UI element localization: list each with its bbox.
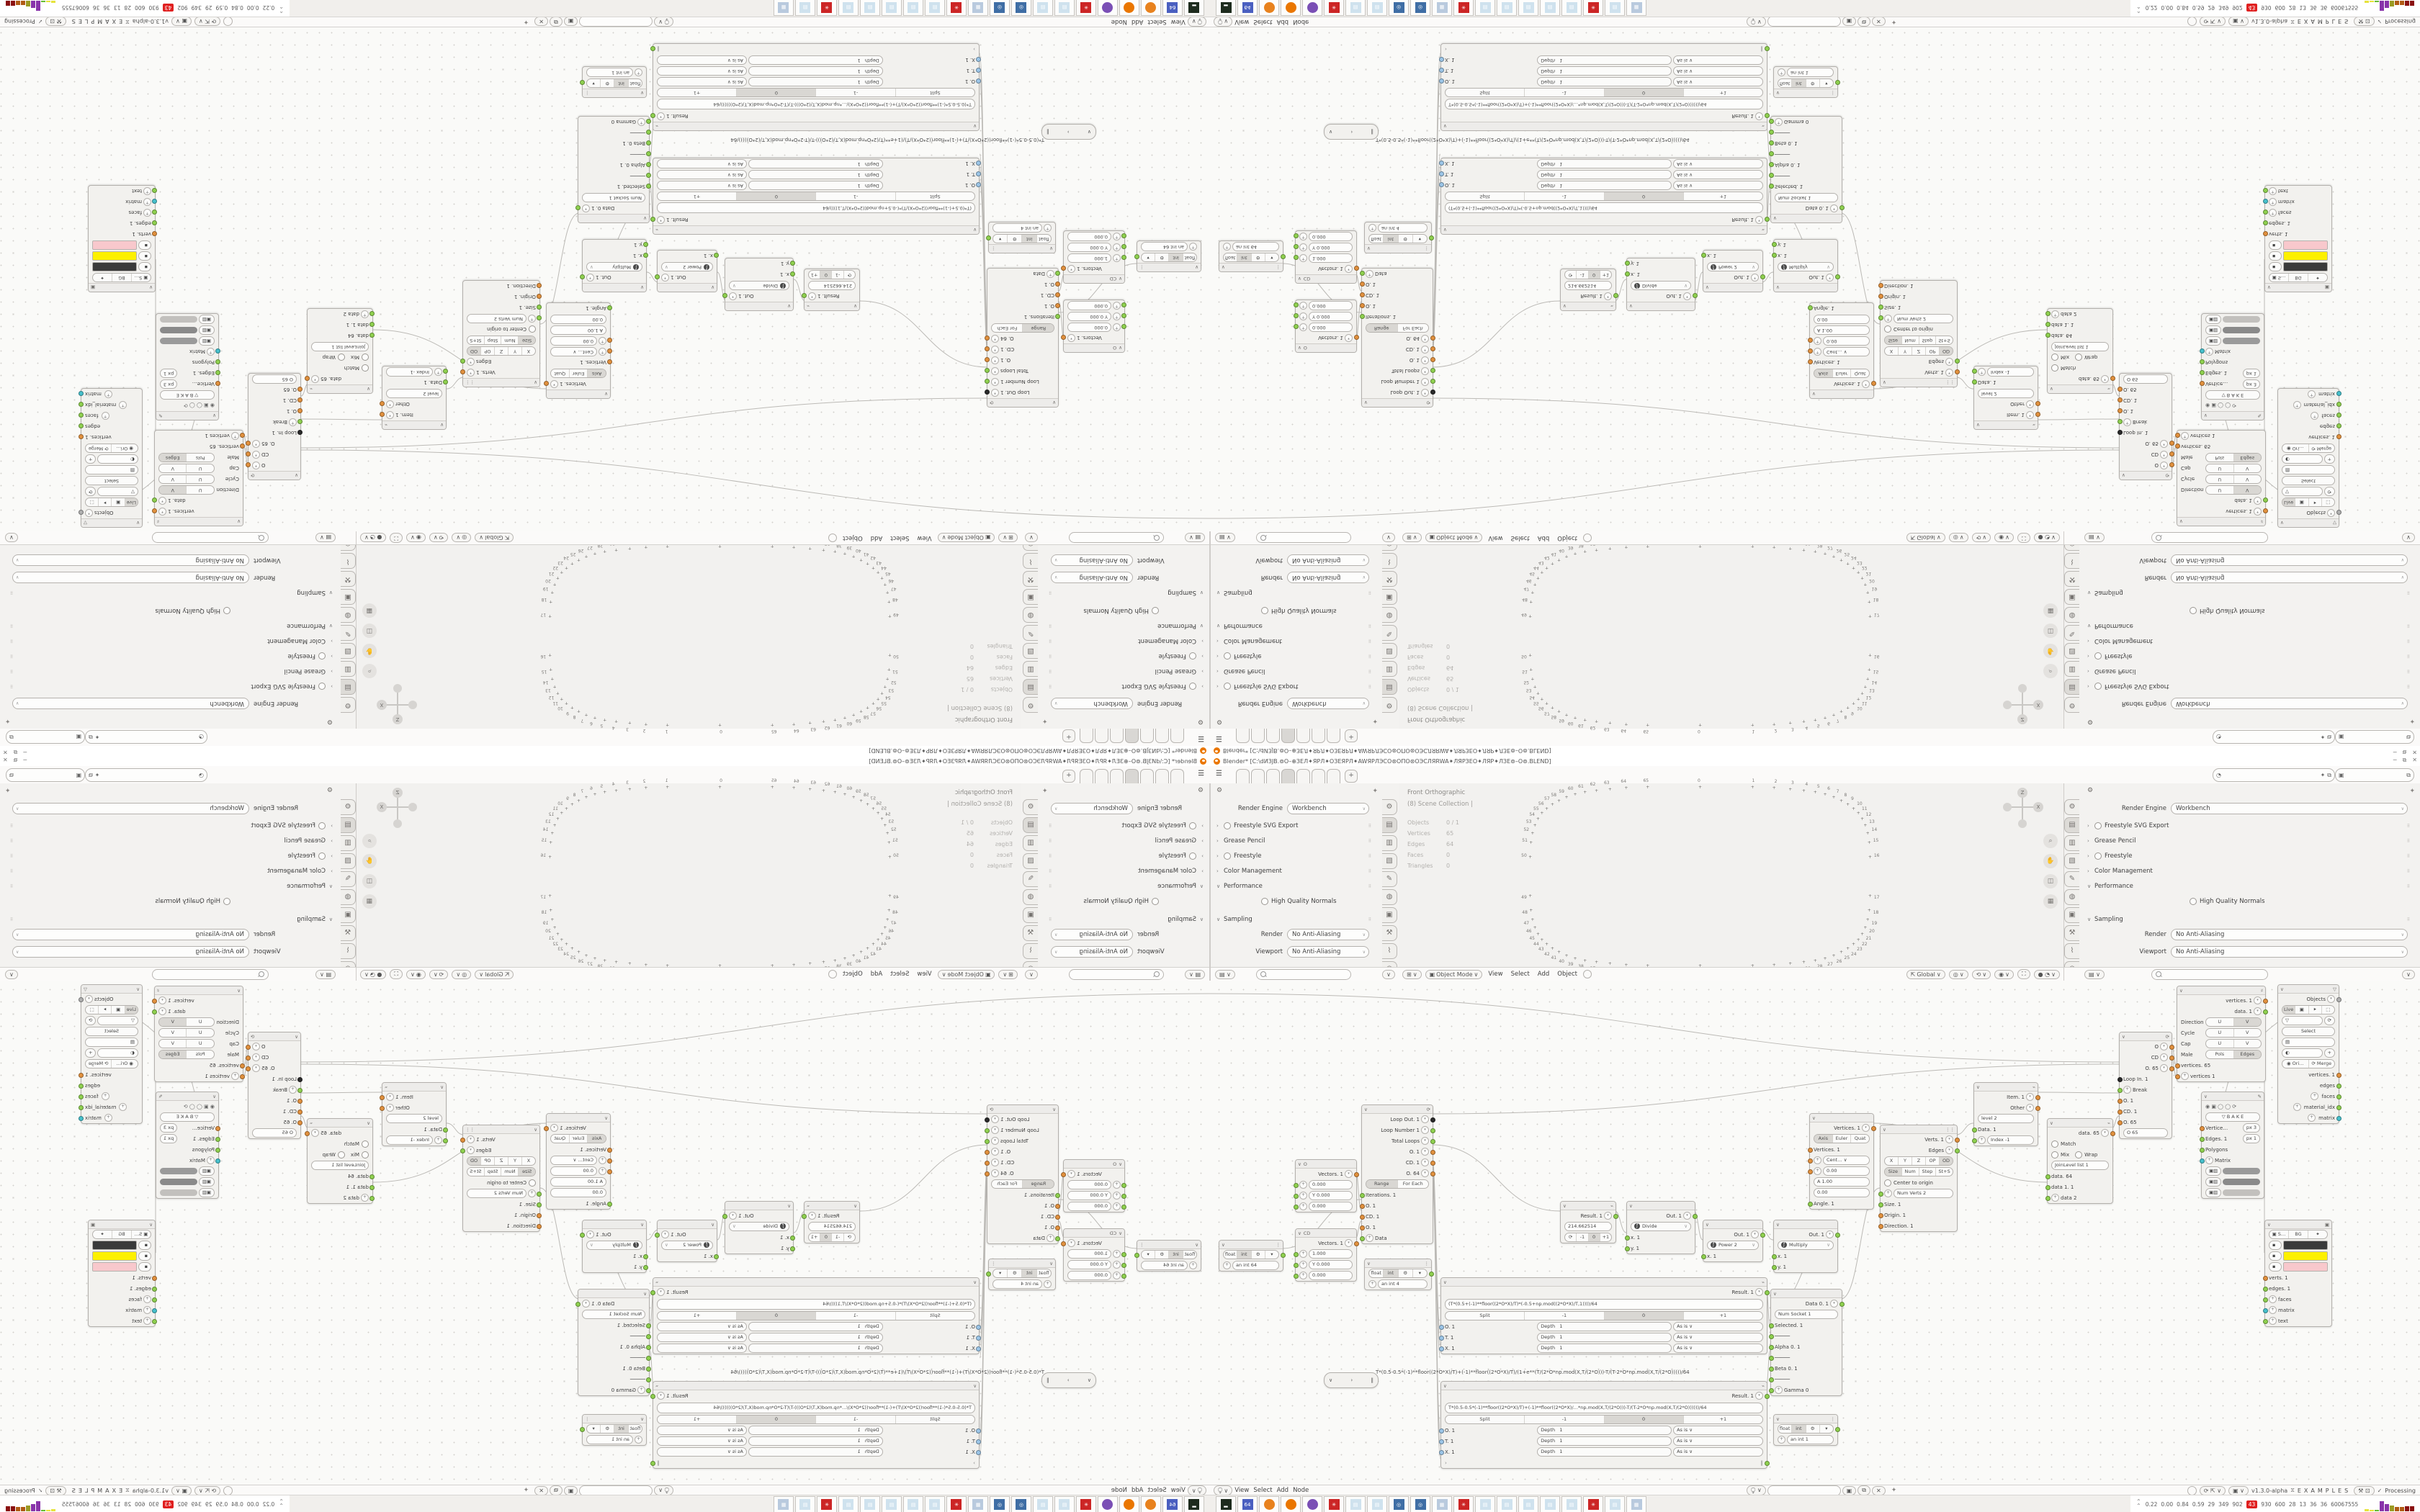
segment-button[interactable]: U: [187, 475, 215, 483]
collapse-chevron-icon[interactable]: ∨: [237, 519, 241, 525]
snap-circle-icon[interactable]: [223, 1486, 233, 1495]
editor-type-button[interactable]: ▤ ∨: [1185, 970, 1205, 979]
output-row[interactable]: Result. 1▾: [653, 111, 979, 122]
field-row[interactable]: +1.000: [1296, 1248, 1356, 1259]
segment-button[interactable]: +1: [1684, 89, 1762, 96]
segment-button[interactable]: int: [1169, 1251, 1183, 1259]
collapse-chevron-icon[interactable]: ∨: [136, 986, 140, 992]
field-row[interactable]: level 2: [382, 1113, 446, 1124]
field-row[interactable]: +Cent… ∨: [1810, 1155, 1873, 1166]
shading-buttons[interactable]: ● ◔ ∨: [2034, 534, 2060, 543]
output-row[interactable]: O. 64▾: [987, 333, 1058, 344]
output-row[interactable]: +matrix: [2278, 1112, 2339, 1123]
output-row[interactable]: Result. 1▾: [805, 1210, 859, 1221]
segment-button[interactable]: Range: [1023, 1180, 1054, 1188]
input-row[interactable]: Size. 1: [1881, 1199, 1957, 1210]
collapse-chevron-icon[interactable]: ∨: [1776, 1222, 1780, 1228]
output-row[interactable]: CD. 1▾: [987, 344, 1058, 355]
taskbar-calculator-icon[interactable]: ▦: [1626, 1496, 1646, 1512]
output-row[interactable]: Data 0. 1▾: [578, 203, 649, 214]
segment-button[interactable]: Step: [1919, 1168, 1937, 1176]
taskbar-disc-icon[interactable]: ◎: [1389, 1496, 1409, 1512]
segment-button[interactable]: Y: [508, 347, 521, 355]
output-row[interactable]: Other▾: [382, 1102, 446, 1113]
input-row[interactable]: Alpha 0. 1: [1771, 160, 1842, 171]
output-row[interactable]: Vectors. 1▾: [1064, 333, 1124, 343]
workspace-tab[interactable]: [1281, 729, 1295, 743]
viewport-nav-button[interactable]: ✋: [2043, 854, 2058, 868]
socket[interactable]: [723, 1214, 728, 1219]
labeled-button-row[interactable]: CycleUV: [155, 1027, 243, 1038]
viewlayer-selector[interactable]: ▣ ⧉: [2335, 730, 2414, 744]
drag-dots-icon[interactable]: ⠿: [1368, 854, 1372, 859]
properties-tab-icon[interactable]: ⌇: [1382, 553, 1397, 569]
socket[interactable]: [581, 81, 586, 86]
socket[interactable]: [380, 402, 385, 407]
field-row[interactable]: +0.000: [1064, 300, 1124, 311]
overlay-group[interactable]: ▣ ∨: [171, 17, 192, 27]
socket[interactable]: [1062, 266, 1067, 271]
formula-field-row[interactable]: (T*(0.5+(-1)**floor((2*O*X)/T)*(-0.5+np.…: [1441, 202, 1767, 215]
socket[interactable]: [2117, 1088, 2123, 1093]
node-list-join[interactable]: ∨⌁data. 65▾MatchMixWrapJoinLevel list 1d…: [307, 1118, 373, 1204]
viewport-nav-button[interactable]: ⌕: [362, 664, 377, 678]
depth-row[interactable]: X. 1Depth 1As is ∨: [653, 1343, 979, 1354]
field-row[interactable]: +Num Verts 2: [1881, 313, 1957, 324]
toggle-slider-row[interactable]: ▣▥: [156, 1166, 218, 1176]
segment-button[interactable]: int: [614, 1425, 628, 1433]
segment-button[interactable]: ▣: [112, 498, 125, 506]
prop-check-high-quality-normals[interactable]: High Quality Normals: [2190, 604, 2420, 617]
socket[interactable]: [651, 47, 656, 52]
prop-section-performance[interactable]: ∨Performance⠿: [5, 619, 333, 632]
close-button[interactable]: ✕: [3, 757, 8, 764]
properties-tab-icon[interactable]: ✎: [2064, 625, 2079, 641]
socket[interactable]: [985, 369, 990, 374]
taskbar-notepad-icon[interactable]: ▤: [1367, 1496, 1387, 1512]
socket[interactable]: [1625, 1236, 1630, 1241]
segment-button[interactable]: U: [187, 464, 215, 472]
socket[interactable]: [79, 1105, 84, 1110]
input-row[interactable]: ─────: [578, 127, 649, 138]
taskbar-notepad-icon[interactable]: ▤: [860, 0, 880, 16]
properties-tab-icon[interactable]: ✎: [1382, 871, 1397, 887]
toggle-radio[interactable]: [2094, 652, 2102, 660]
segment-button[interactable]: Step: [484, 336, 501, 344]
workspace-tab[interactable]: [1312, 729, 1325, 743]
input-row[interactable]: Vertice…px 3: [2202, 379, 2264, 390]
segment-button[interactable]: float: [1778, 79, 1792, 87]
collapse-chevron-icon[interactable]: ∨: [2267, 1222, 2271, 1228]
output-row[interactable]: +material_idx: [2278, 1102, 2339, 1112]
editor-type-button[interactable]: ⊞ ∨: [1402, 534, 1422, 543]
input-row[interactable]: y. 1: [725, 258, 793, 269]
depth-row[interactable]: T. 1Depth 1As is ∨: [653, 1332, 979, 1343]
depth-row[interactable]: O. 1Depth 1As is ∨: [1441, 76, 1767, 87]
collapse-chevron-icon[interactable]: ∨: [212, 1094, 216, 1099]
properties-tab-icon[interactable]: ◍: [341, 607, 356, 623]
workspace-tab[interactable]: [1155, 769, 1169, 783]
properties-tab-icon[interactable]: ▥: [2064, 661, 2079, 677]
taskbar-calculator-icon[interactable]: ▦: [968, 1496, 988, 1512]
node-uv-connection[interactable]: ∨♯vertices. 1▾data. 1▾DirectionUVCycleUV…: [154, 986, 243, 1082]
button-row[interactable]: XYZOPOD: [1881, 346, 1957, 356]
output-row[interactable]: Out. 1▾: [725, 1210, 793, 1221]
viewport-nav-button[interactable]: ◫: [362, 874, 377, 888]
taskbar-terminal-icon[interactable]: ▂: [1184, 1496, 1204, 1512]
button-row[interactable]: Split-10+1: [653, 1414, 979, 1425]
taskbar-blender-icon[interactable]: [1281, 1496, 1301, 1512]
socket[interactable]: [79, 997, 84, 1002]
socket[interactable]: [2117, 1120, 2123, 1125]
field-row[interactable]: +Cent… ∨: [547, 346, 610, 357]
properties-tab-icon[interactable]: ▥: [341, 661, 356, 677]
properties-tab-icon[interactable]: ▣: [1023, 589, 1038, 605]
taskbar-notepad-icon[interactable]: ▤: [1605, 0, 1625, 16]
checkbox-pair-row[interactable]: MixWrap: [308, 1149, 372, 1160]
output-row[interactable]: +matrix: [81, 389, 142, 400]
prop-value-dropdown[interactable]: No Anti-Aliasing: [2171, 929, 2408, 940]
menu-add[interactable]: Add: [869, 534, 884, 541]
chevron-icon[interactable]: ›: [2087, 853, 2092, 859]
socket[interactable]: [1430, 1150, 1435, 1155]
button-row[interactable]: Split-10+1: [653, 191, 979, 202]
collapse-chevron-icon[interactable]: ∨: [534, 1127, 537, 1133]
menu-select[interactable]: Select: [1251, 18, 1274, 25]
collapse-chevron-icon[interactable]: ∨: [1812, 392, 1816, 397]
button-row[interactable]: floatint⚙▾: [1137, 252, 1201, 263]
field-row[interactable]: ◐+: [2278, 454, 2339, 464]
minimize-button[interactable]: ─: [2393, 757, 2397, 764]
node-list-join[interactable]: ∨⌁data. 65▾MatchMixWrapJoinLevel list 1d…: [2047, 1118, 2113, 1204]
chevron-icon[interactable]: ∨: [328, 590, 333, 595]
segment-button[interactable]: ▣ S…: [131, 1230, 151, 1238]
segment-button[interactable]: V: [2234, 486, 2262, 494]
segment-button[interactable]: Axis: [1814, 369, 1833, 377]
search-input[interactable]: [1069, 533, 1164, 544]
socket[interactable]: [651, 1394, 656, 1399]
collapse-chevron-icon[interactable]: ∨: [787, 304, 791, 310]
options-chevron[interactable]: ∨: [2402, 970, 2415, 979]
prop-section-color-management[interactable]: ›Color Management⠿: [1216, 865, 1376, 878]
collapse-chevron-icon[interactable]: ∨: [1629, 1203, 1633, 1209]
properties-tab-icon[interactable]: ▥: [341, 835, 356, 851]
output-row[interactable]: vertices. 1▾: [2177, 506, 2265, 517]
checkbox[interactable]: [1152, 898, 1159, 905]
gizmos-dropdown[interactable]: ◎ ∨: [452, 970, 471, 979]
viewport-nav-button[interactable]: ✋: [362, 644, 377, 658]
field-row[interactable]: ◐+: [2278, 1048, 2339, 1058]
properties-tab-icon[interactable]: ◍: [1023, 889, 1038, 905]
segment-button[interactable]: Size: [518, 336, 535, 344]
button-row[interactable]: RangeFor Each: [987, 1179, 1058, 1189]
workspace-tab[interactable]: [1110, 769, 1124, 783]
mode-dropdown[interactable]: ▣ Object Mode ∨: [938, 534, 995, 543]
prop-section-sampling[interactable]: ∨Sampling⠿: [1216, 913, 1376, 926]
segment-button[interactable]: ⯈: [98, 498, 111, 506]
taskbar-calculator-icon[interactable]: ▦: [1432, 0, 1452, 16]
segment-button[interactable]: BG: [112, 1230, 131, 1238]
menu-select[interactable]: Select: [888, 534, 911, 541]
workspace-tab[interactable]: [1312, 769, 1325, 783]
segment-button[interactable]: Z: [494, 347, 508, 355]
collapse-chevron-icon[interactable]: ∨: [1706, 285, 1709, 291]
output-row[interactable]: +faces: [2278, 410, 2339, 421]
segment-button[interactable]: Edges: [2234, 1050, 2262, 1058]
properties-tab-icon[interactable]: ⚒: [1023, 925, 1038, 941]
prop-section-color-management[interactable]: ›Color Management⠿: [5, 634, 333, 647]
input-row[interactable]: ─────: [578, 1331, 649, 1341]
checkbox-row[interactable]: Center to origin: [1881, 324, 1957, 335]
taskbar-blender-icon[interactable]: [1119, 0, 1139, 16]
taskbar-notepad-icon[interactable]: ▤: [1054, 1496, 1075, 1512]
axis-z[interactable]: Z: [393, 714, 403, 724]
node-number-64[interactable]: ∨⋮floatint⚙▾+an int 64: [1219, 1240, 1283, 1272]
output-row[interactable]: Data 0. 1▾: [1771, 203, 1842, 214]
chevron-icon[interactable]: ›: [1216, 683, 1222, 689]
field-row[interactable]: +an int 1: [583, 1434, 646, 1445]
menu-object[interactable]: Object: [1555, 534, 1579, 541]
segment-button[interactable]: St+S: [467, 1168, 484, 1176]
taskbar-red-gear-icon[interactable]: ✳: [1324, 0, 1344, 16]
prop-section-color-management[interactable]: ›Color Management⠿: [2087, 865, 2415, 878]
field-row[interactable]: O 65: [2120, 1128, 2172, 1138]
input-row[interactable]: Vertices. 1: [547, 357, 610, 368]
viewport-3d[interactable]: Front Orthographic (8) Scene Collection …: [357, 783, 1021, 981]
collapse-chevron-icon[interactable]: ∨: [1364, 1107, 1368, 1112]
node-formula-big-1[interactable]: ∨⌁Result. 1▾(T*(0.5+(-1)**floor((2*O*X)/…: [653, 158, 980, 235]
socket[interactable]: [153, 1009, 158, 1014]
input-row[interactable]: Loop In. 1: [2120, 1074, 2172, 1084]
taskbar-red-gear-icon[interactable]: ✳: [1583, 1496, 1603, 1512]
output-row[interactable]: Out. 1▾: [1703, 272, 1762, 283]
taskbar-notepad-icon[interactable]: ▤: [1540, 0, 1560, 16]
function-row[interactable]: ƒPower 2∨: [658, 1240, 717, 1251]
prop-section-freestyle[interactable]: ›Freestyle⠿: [1044, 850, 1204, 863]
output-row[interactable]: Vectors. 1▾: [1296, 1238, 1356, 1248]
menu-icon[interactable]: ☰: [1216, 770, 1222, 778]
taskbar-calculator-icon[interactable]: ▦: [968, 0, 988, 16]
segment-button[interactable]: int: [1237, 1251, 1251, 1259]
node-number-1[interactable]: ∨⋮floatint⚙▾+an int 1: [582, 66, 647, 98]
transform-circle-icon[interactable]: [1583, 970, 1592, 978]
viewport-nav-button[interactable]: ▦: [2043, 603, 2058, 618]
input-row[interactable]: x. 1: [1627, 269, 1695, 280]
button-row[interactable]: Live▣⯈⬚: [81, 1004, 142, 1015]
button-row[interactable]: SizeNumStepSt+S: [463, 1166, 539, 1177]
socket[interactable]: [2200, 1158, 2205, 1164]
input-row[interactable]: +Break: [2120, 1084, 2172, 1095]
chevron-icon[interactable]: ∨: [2087, 623, 2092, 629]
taskbar-red-gear-icon[interactable]: ✳: [1453, 1496, 1474, 1512]
field-row[interactable]: ◐+: [81, 1048, 142, 1058]
segment-button[interactable]: BG: [2289, 274, 2308, 282]
properties-tab-icon[interactable]: ⚒: [1382, 925, 1397, 941]
segment-button[interactable]: +1: [1600, 1233, 1611, 1241]
drag-dots-icon[interactable]: ⠿: [1048, 639, 1052, 644]
node-loop-in[interactable]: ∨⟳Loop Out. 1▾Loop Number 1▾Total Loops▾…: [987, 1104, 1059, 1244]
properties-tab-icon[interactable]: ⚒: [1382, 571, 1397, 587]
collapse-chevron-icon[interactable]: ∨: [1298, 1161, 1301, 1167]
color-swatch-row[interactable]: ▪: [2265, 1240, 2331, 1251]
input-row[interactable]: edges. 1: [2265, 218, 2331, 229]
taskbar-floppy-64-icon[interactable]: 64: [1237, 1496, 1258, 1512]
checkbox-row[interactable]: Center to origin: [463, 1177, 539, 1188]
icon-row[interactable]: ◉ ▣ ◯ ◯ ⟳: [156, 400, 218, 411]
segment-button[interactable]: V: [159, 464, 187, 472]
input-row[interactable]: vertices. 65: [155, 1060, 243, 1071]
segment-button[interactable]: Split: [1446, 1312, 1525, 1320]
output-row[interactable]: O▾: [248, 1041, 300, 1052]
properties-tab-icon[interactable]: ✎: [1023, 625, 1038, 641]
segment-button[interactable]: +1: [1684, 192, 1762, 200]
segment-button[interactable]: Num: [1902, 336, 1919, 344]
segment-button[interactable]: U: [2206, 1029, 2234, 1037]
segment-button[interactable]: ⬚: [2322, 1006, 2334, 1014]
workspace-tab[interactable]: [1236, 729, 1250, 743]
output-row[interactable]: vertices. 1: [81, 432, 142, 443]
prop-section-grease-pencil[interactable]: ›Grease Pencil⠿: [1216, 665, 1376, 678]
drag-dots-icon[interactable]: ⠿: [1368, 639, 1372, 644]
input-row[interactable]: +Data: [987, 1233, 1058, 1243]
fake-user-button[interactable]: ▣: [1842, 1486, 1857, 1495]
segment-button[interactable]: V: [2234, 464, 2262, 472]
prop-value-dropdown[interactable]: No Anti-Aliasing: [2171, 572, 2408, 583]
taskbar-notepad-icon[interactable]: ▤: [1518, 0, 1538, 16]
prop-select-render-engine[interactable]: Render EngineWorkbench: [1044, 802, 1204, 815]
input-row[interactable]: y. 1: [1774, 240, 1837, 251]
tree-name-field[interactable]: [1767, 17, 1841, 27]
segment-button[interactable]: For Each: [1398, 324, 1429, 332]
socket[interactable]: [1062, 1172, 1067, 1177]
input-row[interactable]: verts. 1: [89, 1272, 155, 1283]
socket[interactable]: [1439, 1336, 1444, 1341]
depth-row[interactable]: T. 1Depth 1As is ∨: [1441, 169, 1767, 180]
properties-tab-icon[interactable]: ▧: [2064, 853, 2079, 869]
checkbox-row[interactable]: Match: [308, 1138, 372, 1149]
properties-tab-icon[interactable]: ⚙: [1382, 697, 1397, 713]
input-row[interactable]: O. 1: [248, 1095, 300, 1106]
input-row[interactable]: +matrix: [2265, 197, 2331, 207]
button-row[interactable]: ◉ Ori…⟳ Merge: [2278, 1058, 2339, 1069]
collapsed-strip-row[interactable]: ›‖: [1441, 1457, 1767, 1468]
drag-dots-icon[interactable]: ⠿: [1368, 917, 1372, 922]
workspace-tab[interactable]: [1266, 769, 1280, 783]
segment-button[interactable]: ⚙: [1007, 235, 1021, 243]
socket[interactable]: [1062, 336, 1067, 341]
search-input[interactable]: [1256, 969, 1351, 980]
node-list-item[interactable]: ∨⌁Item. 1▾Other▾level 2Data. 1+Index -1: [382, 1082, 447, 1146]
segment-button[interactable]: ▾: [993, 1269, 1007, 1277]
drag-dots-icon[interactable]: ⠿: [9, 884, 13, 889]
chevron-icon[interactable]: ›: [328, 868, 333, 874]
input-row[interactable]: Origin. 1: [1881, 1210, 1957, 1220]
viewport-nav-button[interactable]: ✋: [2043, 644, 2058, 658]
output-row[interactable]: Total Loops▾: [1362, 366, 1433, 377]
input-row[interactable]: data 1. 1: [2048, 1182, 2112, 1192]
toggle-radio[interactable]: [318, 683, 326, 690]
input-row[interactable]: +matrix: [89, 197, 155, 207]
toggle-radio[interactable]: [1224, 852, 1231, 860]
copy-icon[interactable]: ⧉: [89, 734, 93, 741]
properties-tab-icon[interactable]: ◍: [1382, 889, 1397, 905]
labeled-button-row[interactable]: CapUV: [155, 1038, 243, 1049]
drag-dots-icon[interactable]: ⠿: [9, 869, 13, 874]
socket[interactable]: [1769, 1323, 1774, 1328]
field-row[interactable]: level 2: [382, 388, 446, 399]
labeled-button-row[interactable]: CapUV: [2177, 1038, 2265, 1049]
tree-browse-button[interactable]: ⧬ ∨: [654, 1485, 673, 1495]
checkbox[interactable]: [2190, 898, 2197, 905]
editor-type-button[interactable]: ▤ ∨: [2084, 970, 2105, 979]
output-row[interactable]: Item. 1▾: [382, 410, 446, 420]
segment-button[interactable]: +1: [1600, 271, 1611, 279]
output-row[interactable]: O. 1▾: [1362, 355, 1433, 366]
formula-field-row[interactable]: (T*(0.5+(-1)**floor((2*O*X)/T)*(-0.5+np.…: [653, 202, 979, 215]
input-row[interactable]: +faces: [2265, 207, 2331, 218]
segment-button[interactable]: float: [1369, 1269, 1384, 1277]
drag-dots-icon[interactable]: ⠿: [9, 669, 13, 674]
input-row[interactable]: Iterations. 1: [1362, 1189, 1433, 1200]
socket[interactable]: [2263, 1319, 2268, 1324]
segment-button[interactable]: OD: [467, 1157, 480, 1165]
collapse-chevron-icon[interactable]: ∨: [1776, 1416, 1780, 1422]
segment-button[interactable]: ▣ S…: [2269, 1230, 2289, 1238]
drag-dots-icon[interactable]: ⠿: [1368, 669, 1372, 674]
checkbox-pair-row[interactable]: MixWrap: [2048, 1149, 2112, 1160]
properties-tab-icon[interactable]: ▥: [1382, 835, 1397, 851]
field-row[interactable]: +Index -1: [1974, 1135, 2038, 1146]
output-row[interactable]: vertices. 1▾: [155, 995, 243, 1006]
input-row[interactable]: +Gamma 0: [1771, 117, 1842, 127]
taskbar-notepad-icon[interactable]: ▤: [1540, 1496, 1560, 1512]
input-row[interactable]: +data 2: [308, 1192, 372, 1203]
segment-button[interactable]: ▾: [1265, 1251, 1278, 1259]
toggle-radio[interactable]: [1189, 683, 1196, 690]
input-row[interactable]: x. 1: [725, 269, 793, 280]
input-row[interactable]: x. 1: [1703, 1251, 1762, 1261]
pin-icon[interactable]: ✦: [1891, 18, 1897, 25]
segment-button[interactable]: ⚙: [1155, 253, 1168, 261]
menu-select[interactable]: Select: [1251, 1487, 1274, 1494]
field-row[interactable]: O 65: [248, 374, 300, 384]
checkbox[interactable]: [1261, 607, 1268, 614]
socket[interactable]: [985, 1171, 990, 1176]
output-row[interactable]: Result. 1▾: [653, 1287, 979, 1297]
properties-tab-icon[interactable]: ⚒: [341, 571, 356, 587]
collapse-chevron-icon[interactable]: ∨: [1812, 1115, 1816, 1121]
prop-select-render-engine[interactable]: Render EngineWorkbench: [5, 802, 333, 815]
prop-select-render-engine[interactable]: Render EngineWorkbench: [1216, 697, 1376, 710]
node-get-objects-data[interactable]: ∨▽Objects▾Live▣⯈⬚▽⟳Select▤◐+◉ Ori…⟳ Merg…: [2277, 984, 2339, 1124]
socket[interactable]: [1878, 1202, 1883, 1207]
button-row[interactable]: Split-10+1: [1441, 1310, 1767, 1321]
drag-dots-icon[interactable]: ⠿: [1048, 654, 1052, 659]
button-row[interactable]: SizeNumStepSt+S: [463, 335, 539, 346]
options-chevron[interactable]: ∨: [5, 970, 18, 979]
segment-button[interactable]: float: [1183, 1251, 1196, 1259]
prop-value-dropdown[interactable]: No Anti-Aliasing: [2171, 946, 2408, 958]
editor-type-button[interactable]: ▤ ∨: [2084, 534, 2105, 543]
prop-check-high-quality-normals[interactable]: High Quality Normals: [1261, 895, 1382, 908]
collapse-chevron-icon[interactable]: ∨: [1773, 216, 1777, 222]
taskbar-red-gear-icon[interactable]: ✳: [1076, 1496, 1096, 1512]
color-swatch-row[interactable]: ▪: [2265, 1251, 2331, 1261]
chevron-icon[interactable]: ›: [1216, 653, 1222, 659]
search-input[interactable]: [1256, 533, 1351, 544]
collapse-chevron-icon[interactable]: ∨: [440, 1084, 444, 1090]
scene-selector[interactable]: ◔ ✦ ⧉: [2213, 730, 2335, 744]
